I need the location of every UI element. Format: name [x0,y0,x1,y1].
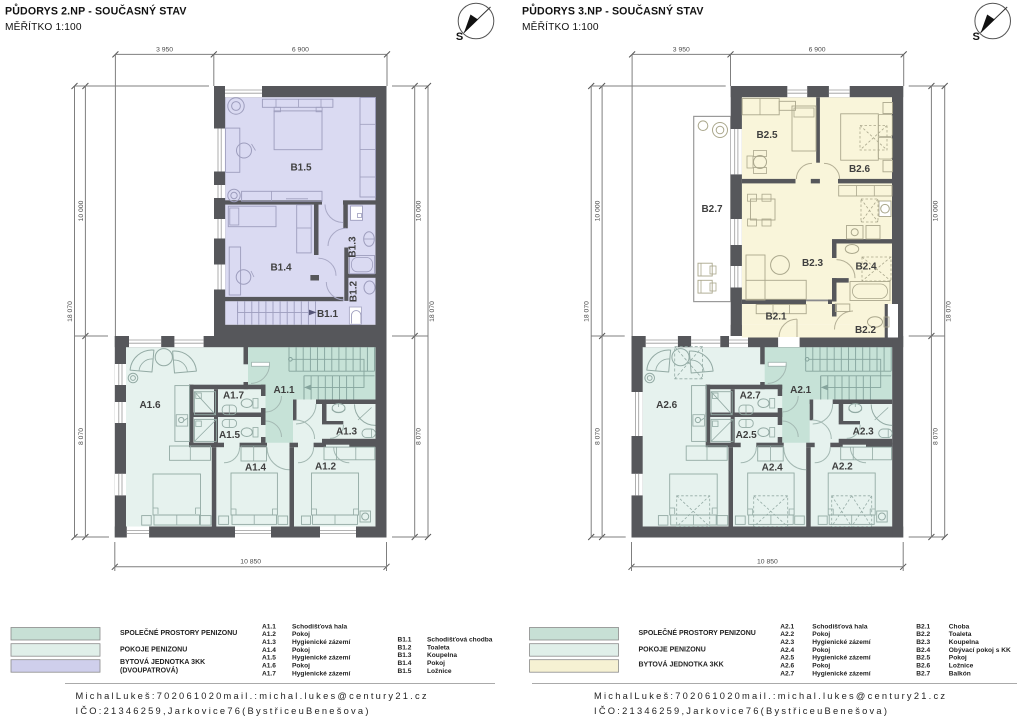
svg-text:B2.2: B2.2 [916,631,930,638]
svg-text:Hygienické zázemí: Hygienické zázemí [292,670,351,677]
svg-text:Hygienické zázemí: Hygienické zázemí [812,655,871,662]
svg-text:MichalLukeš:702061020mail.:mic: MichalLukeš:702061020mail.:michal.lukes@… [594,691,947,701]
svg-text:B1.2: B1.2 [398,644,412,651]
svg-text:B1.2: B1.2 [349,281,360,303]
svg-text:B1.1: B1.1 [398,636,412,643]
svg-text:6 900: 6 900 [809,47,826,54]
svg-text:IČO:21346259,Jarkovice76(Bystř: IČO:21346259,Jarkovice76(BystřiceuBenešo… [594,706,889,716]
svg-text:Obývací pokoj s KK: Obývací pokoj s KK [949,647,1011,654]
svg-text:A1.5: A1.5 [262,655,276,662]
svg-text:B1.5: B1.5 [398,668,412,675]
svg-text:8 070: 8 070 [595,428,602,445]
svg-text:B2.2: B2.2 [855,325,877,336]
svg-text:PŮDORYS 2.NP - SOUČASNÝ STAV: PŮDORYS 2.NP - SOUČASNÝ STAV [5,4,187,18]
svg-text:Choba: Choba [949,623,970,630]
svg-text:8 070: 8 070 [78,428,85,445]
svg-text:BYTOVÁ JEDNOTKA 3KK: BYTOVÁ JEDNOTKA 3KK [639,660,724,669]
svg-text:A1.7: A1.7 [262,670,276,677]
svg-text:B2.7: B2.7 [701,204,723,215]
svg-text:A2.3: A2.3 [780,639,794,646]
svg-text:A1.1: A1.1 [262,623,276,630]
svg-text:PŮDORYS 3.NP - SOUČASNÝ STAV: PŮDORYS 3.NP - SOUČASNÝ STAV [522,4,704,18]
svg-text:B2.7: B2.7 [916,670,930,677]
svg-text:MĚŘÍTKO 1:100: MĚŘÍTKO 1:100 [522,20,599,33]
svg-text:10 000: 10 000 [932,200,939,221]
svg-text:10 000: 10 000 [595,200,602,221]
svg-text:B2.1: B2.1 [916,623,930,630]
svg-text:B2.3: B2.3 [916,639,930,646]
svg-text:MichalLukeš:702061020mail.:mic: MichalLukeš:702061020mail.:michal.lukes@… [76,691,429,701]
svg-text:18 070: 18 070 [946,301,953,322]
svg-text:A1.2: A1.2 [315,462,337,473]
svg-text:B2.4: B2.4 [916,647,930,654]
svg-text:Pokoj: Pokoj [812,663,830,670]
svg-text:6 900: 6 900 [292,47,309,54]
svg-text:B2.5: B2.5 [756,130,778,141]
svg-text:Pokoj: Pokoj [949,655,967,662]
svg-text:A2.1: A2.1 [790,385,812,396]
svg-text:A2.4: A2.4 [780,647,794,654]
svg-text:(DVOUPATROVÁ): (DVOUPATROVÁ) [120,666,178,675]
svg-text:S: S [456,31,463,43]
svg-text:3 950: 3 950 [673,47,690,54]
svg-text:A2.5: A2.5 [780,655,794,662]
svg-text:POKOJE PENIZONU: POKOJE PENIZONU [639,647,706,654]
svg-text:3 950: 3 950 [156,47,173,54]
svg-text:B2.5: B2.5 [916,655,930,662]
svg-text:Pokoj: Pokoj [292,647,310,654]
svg-text:8 070: 8 070 [932,428,939,445]
svg-text:A1.7: A1.7 [223,391,245,402]
svg-text:A2.2: A2.2 [780,631,794,638]
svg-text:Schodišťová chodba: Schodišťová chodba [427,636,493,643]
svg-text:B1.3: B1.3 [348,236,359,258]
svg-text:SPOLEČNÉ PROSTORY PENIZONU: SPOLEČNÉ PROSTORY PENIZONU [639,628,756,637]
svg-text:A1.6: A1.6 [262,663,276,670]
svg-text:Schodišťová hala: Schodišťová hala [292,623,348,630]
svg-text:Pokoj: Pokoj [292,631,310,638]
svg-text:B2.1: B2.1 [765,312,787,323]
svg-text:Pokoj: Pokoj [427,660,445,667]
svg-text:Hygienické zázemí: Hygienické zázemí [812,639,871,646]
svg-text:Balkón: Balkón [949,670,971,677]
svg-text:Toaleta: Toaleta [427,644,450,651]
svg-text:POKOJE PENIZONU: POKOJE PENIZONU [120,647,187,654]
svg-text:B1.1: B1.1 [317,309,339,320]
svg-text:Koupelna: Koupelna [427,652,457,659]
svg-text:A1.3: A1.3 [262,639,276,646]
svg-text:A2.3: A2.3 [853,427,875,438]
svg-text:A2.6: A2.6 [656,400,678,411]
svg-text:18 070: 18 070 [67,301,74,322]
svg-text:10 850: 10 850 [757,559,778,566]
svg-text:B1.4: B1.4 [270,263,292,274]
svg-text:10 000: 10 000 [78,200,85,221]
svg-text:10 850: 10 850 [240,559,261,566]
svg-text:Pokoj: Pokoj [292,663,310,670]
svg-text:B1.3: B1.3 [398,652,412,659]
svg-text:A1.2: A1.2 [262,631,276,638]
svg-text:Hygienické zázemí: Hygienické zázemí [292,655,351,662]
svg-text:Koupelna: Koupelna [949,639,979,646]
svg-text:B2.6: B2.6 [849,164,871,175]
svg-text:A2.7: A2.7 [740,391,762,402]
svg-text:A2.6: A2.6 [780,663,794,670]
svg-text:A1.4: A1.4 [262,647,276,654]
svg-text:8 070: 8 070 [416,428,423,445]
svg-text:Hygienické zázemí: Hygienické zázemí [292,639,351,646]
svg-text:B2.6: B2.6 [916,663,930,670]
svg-text:A2.7: A2.7 [780,670,794,677]
svg-text:A2.1: A2.1 [780,623,794,630]
svg-text:Pokoj: Pokoj [812,647,830,654]
svg-text:Pokoj: Pokoj [812,631,830,638]
svg-text:B1.5: B1.5 [290,163,312,174]
svg-text:A2.5: A2.5 [736,430,758,441]
svg-text:A1.1: A1.1 [273,385,295,396]
svg-text:A2.4: A2.4 [762,463,784,474]
svg-text:18 070: 18 070 [429,301,436,322]
svg-text:A1.5: A1.5 [219,430,241,441]
svg-text:A2.2: A2.2 [832,462,854,473]
svg-text:S: S [973,31,980,43]
svg-text:10 000: 10 000 [416,200,423,221]
svg-text:Ložnice: Ložnice [949,663,974,670]
svg-text:SPOLEČNÉ PROSTORY PENIZONU: SPOLEČNÉ PROSTORY PENIZONU [120,628,237,637]
svg-text:B2.3: B2.3 [802,258,824,269]
svg-text:Hygienické zázemí: Hygienické zázemí [812,670,871,677]
svg-text:Ložnice: Ložnice [427,668,452,675]
svg-text:B2.4: B2.4 [855,262,877,273]
svg-text:IČO:21346259,Jarkovice76(Bystř: IČO:21346259,Jarkovice76(BystřiceuBenešo… [76,706,371,716]
svg-text:A1.6: A1.6 [139,400,161,411]
svg-text:A1.3: A1.3 [336,427,358,438]
svg-text:18 070: 18 070 [584,301,591,322]
svg-text:B1.4: B1.4 [398,660,412,667]
svg-text:Schodišťová hala: Schodišťová hala [812,623,868,630]
svg-text:BYTOVÁ JEDNOTKA 3KK: BYTOVÁ JEDNOTKA 3KK [120,657,205,666]
svg-text:A1.4: A1.4 [245,463,267,474]
svg-text:Toaleta: Toaleta [949,631,972,638]
svg-text:MĚŘÍTKO 1:100: MĚŘÍTKO 1:100 [5,20,82,33]
